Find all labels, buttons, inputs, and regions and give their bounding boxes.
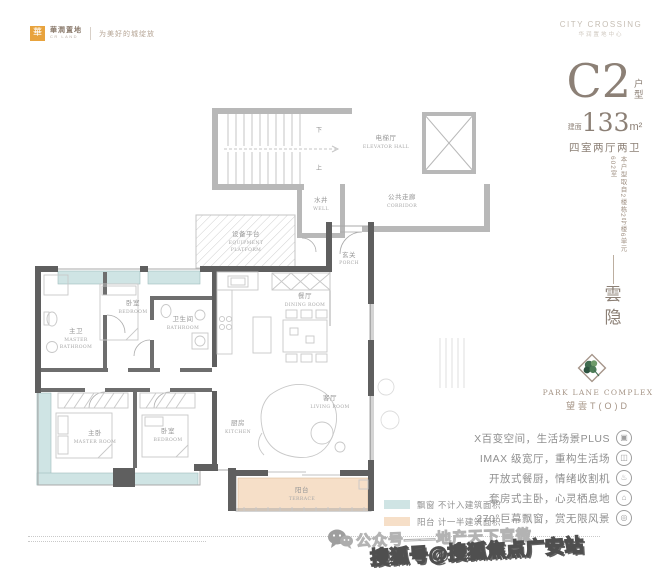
wechat-icon (326, 527, 354, 551)
bath-label-cn: 卫生间 (173, 314, 194, 323)
brand-name-en: CR LAND (50, 35, 82, 39)
elevator-shaft (424, 114, 474, 172)
cube-icon: ▣ (616, 430, 632, 446)
unit-source-note: 本户型取自2楼栋2号楼6单元602室 (607, 156, 627, 264)
brand-divider (90, 27, 91, 40)
master-room-label-en: MASTER ROOM (74, 439, 117, 445)
brand-logo: 華 華潤置地 CR LAND 为美好的城绽放 (30, 26, 155, 41)
master-room-label-cn: 主卧 (88, 428, 102, 437)
theme-char-1: 雲 (601, 284, 625, 307)
dining-label-en: DINING ROOM (285, 302, 326, 308)
kitchen-label-cn: 厨房 (231, 418, 245, 427)
complex-name-en: PARK LANE COMPLEX (528, 388, 660, 397)
unit-suffix-char2: 型 (634, 91, 644, 102)
equipment-platform-label-en2: PLATFORM (231, 247, 262, 253)
corridor: 公共走廊 CORRIDOR (362, 184, 490, 232)
unit-code-suffix: 户 型 (634, 80, 644, 102)
elevator-hall-label-en: ELEVATOR HALL (363, 144, 409, 150)
equipment-platform-label-cn: 设备平台 (232, 229, 260, 238)
stair-down-label: 下 (316, 127, 322, 134)
well-room: 水井 WELL (297, 184, 345, 238)
corridor-label-en: CORRIDOR (387, 203, 417, 209)
area-unit: m² (629, 121, 642, 133)
elevator-hall: 电梯厅 ELEVATOR HALL (363, 133, 409, 150)
dining-label-cn: 餐厅 (298, 291, 312, 300)
bedroom-south-label-en: BEDROOM (154, 437, 183, 443)
theme-char-2: 隐 (601, 307, 625, 330)
terrace-area (238, 478, 368, 511)
area-prefix: 建面 (568, 122, 582, 132)
porch-label-cn: 玄关 (342, 250, 356, 259)
stair-up-label: 上 (316, 164, 322, 172)
master-bath-label-en1: MASTER (64, 337, 88, 343)
bedroom-south-label-cn: 卧室 (161, 426, 175, 435)
unit-info: C2 户 型 建面 133 m² 四室两厅两卫 (564, 58, 646, 155)
well-label-en: WELL (313, 206, 329, 212)
floorplan-page: 華 華潤置地 CR LAND 为美好的城绽放 CITY CROSSING 华润置… (0, 0, 660, 569)
floorplan-drawing: 下 上 电梯厅 ELEVATOR HALL 公共走廊 CORRIDOR 水井 W… (0, 95, 500, 540)
area-value: 133 (582, 110, 630, 135)
selling-point-text: 套房式主卧，心灵栖息地 (489, 491, 610, 506)
bedroom-north-label-cn: 卧室 (126, 298, 140, 307)
bath-label-en: BATHROOM (167, 325, 199, 331)
park-lane-logo-icon (574, 350, 610, 386)
complex-name-cn: 望雲T(O)D (528, 399, 660, 412)
terrace-label-cn: 阳台 (295, 485, 309, 494)
brand-slogan: 为美好的城绽放 (99, 29, 155, 39)
equipment-platform: 设备平台 EQUIPMENT PLATFORM (196, 215, 295, 268)
project-name-en: CITY CROSSING (556, 19, 646, 31)
well-label-cn: 水井 (314, 195, 328, 204)
unit-layout: 四室两厅两卫 (564, 140, 646, 155)
porch-label-en: PORCH (339, 260, 359, 266)
living-label-cn: 客厅 (323, 393, 337, 402)
fine-print-line (28, 541, 206, 542)
living-label-en: LIVING ROOM (310, 404, 349, 410)
vertical-rule (613, 255, 614, 284)
project-name-cn: 华润置地中心 (556, 31, 646, 39)
unit-code: C2 (567, 58, 631, 104)
terrace-label-en: TERRACE (289, 496, 315, 502)
corridor-label-cn: 公共走廊 (388, 192, 416, 201)
screen-icon: ◫ (616, 450, 632, 466)
master-bath-label-en2: BATHROOM (60, 344, 92, 350)
window-icon: ◎ (616, 510, 632, 526)
equipment-platform-label-en1: EQUIPMENT (229, 240, 264, 246)
project-logo: CITY CROSSING 华润置地中心 (556, 19, 646, 39)
unit-area: 建面 133 m² (564, 110, 646, 135)
master-bath-label-cn: 主卫 (69, 326, 83, 335)
theme-name: 雲 隐 (601, 284, 625, 330)
stairwell: 下 上 (212, 108, 352, 190)
bedroom-north-label-en: BEDROOM (119, 309, 148, 315)
brand-logo-icon: 華 (30, 26, 45, 41)
bed-icon: ⌂ (616, 490, 632, 506)
dining-icon: ♨ (616, 470, 632, 486)
bay-windows (37, 271, 200, 485)
selling-point-text: 开放式餐厨，情绪收割机 (489, 471, 610, 486)
elevator-hall-label-cn: 电梯厅 (376, 133, 397, 142)
kitchen-label-en: KITCHEN (225, 429, 251, 435)
